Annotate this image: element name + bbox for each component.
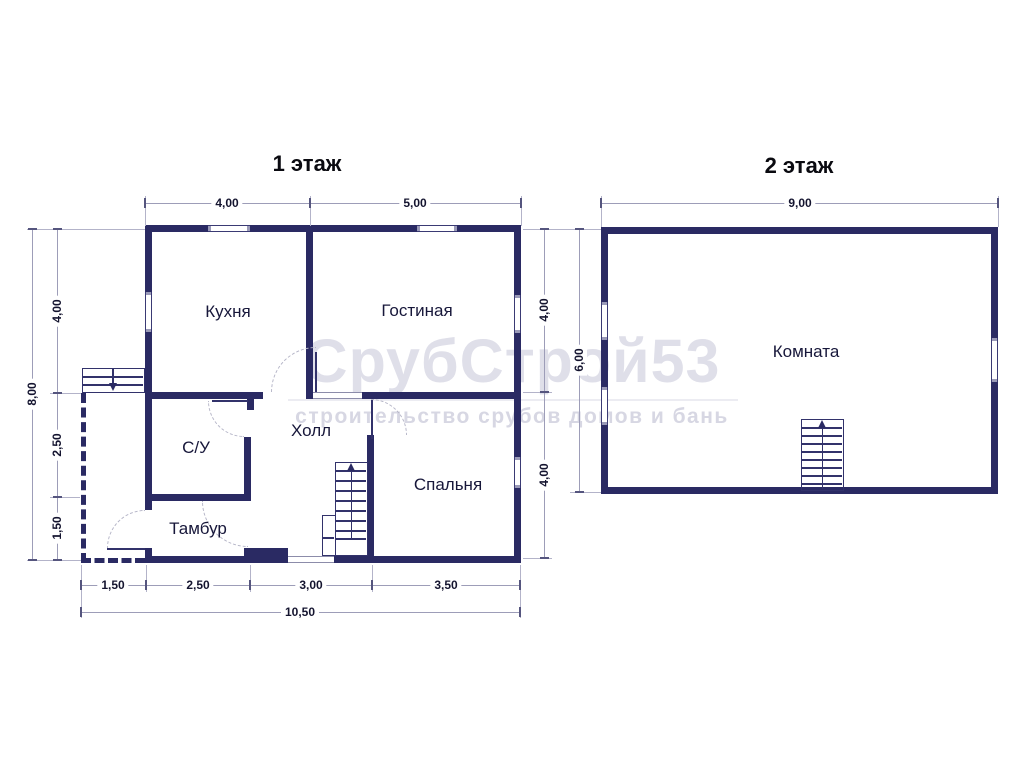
dim-label-left-middle: 2,50	[49, 429, 65, 460]
f1-wall-hall-left	[145, 392, 263, 399]
dim-tick	[144, 198, 146, 208]
f1-door-gap-vestibule-porch	[145, 510, 152, 548]
dim-tick	[540, 557, 549, 559]
f2-window-right	[991, 338, 998, 382]
f1-window-kitchen-left	[145, 292, 152, 332]
dim-tick	[519, 580, 521, 590]
dim-label-left-total: 8,00	[24, 378, 40, 409]
f1-wall-bathroom-bottom	[145, 494, 251, 501]
f1-dim-line-left	[57, 229, 58, 560]
floor1-title: 1 этаж	[273, 151, 342, 177]
dim-tick	[575, 228, 584, 230]
f1-window-living-right	[514, 295, 521, 333]
dim-tick	[53, 559, 62, 561]
f1-window-kitchen-top	[208, 225, 250, 232]
dim-label-left-upper: 4,00	[49, 295, 65, 326]
f1-entrance-opening	[288, 556, 334, 563]
dim-tick	[145, 580, 147, 590]
stairs-arrow-up-icon	[818, 420, 826, 428]
f2-wall-bottom	[601, 487, 998, 494]
dim-tick	[28, 228, 37, 230]
dim-tick	[371, 580, 373, 590]
f1-door-arc-bathroom	[208, 401, 244, 437]
f1-dim-line-right	[544, 229, 545, 558]
stair-center-line	[351, 471, 353, 539]
dim-tick	[53, 392, 62, 394]
dim-tick	[309, 198, 311, 208]
floorplan-canvas: СрубСтрой53 строительство срубов домов и…	[0, 0, 1024, 768]
f2-wall-top	[601, 227, 998, 234]
dim-tick	[540, 391, 549, 393]
dim-label-bottom-hall: 3,00	[295, 577, 326, 593]
dim-tick	[600, 198, 602, 208]
stair-center-line	[822, 427, 824, 489]
f1-entry-steps	[82, 368, 145, 393]
dim-tick	[80, 580, 82, 590]
dim-tick	[249, 580, 251, 590]
f1-wall-bedroom-left	[367, 435, 374, 563]
room-label-room: Комната	[773, 342, 840, 362]
dim-tick	[520, 198, 522, 208]
room-label-bathroom: С/У	[182, 438, 210, 458]
f1-porch-outline	[81, 393, 145, 563]
watermark-brand: СрубСтрой53	[272, 326, 752, 396]
dim-tick	[53, 228, 62, 230]
dim-label-bottom-total: 10,50	[281, 604, 319, 620]
dim-tick	[80, 607, 82, 617]
dim-label-right-lower: 4,00	[536, 459, 552, 490]
dim-label-left-lower: 1,50	[49, 512, 65, 543]
dim-tick	[575, 491, 584, 493]
f1-window-living-top	[417, 225, 457, 232]
f1-wall-bathroom-stub	[247, 399, 254, 410]
stairs-arrow-up-icon	[347, 463, 355, 471]
room-label-bedroom: Спальня	[414, 475, 482, 495]
room-label-living: Гостиная	[381, 301, 452, 321]
f2-staircase	[801, 419, 844, 491]
dim-label-bottom-bedroom: 3,50	[430, 577, 461, 593]
steps-arrow-down-icon	[109, 383, 117, 391]
dim-label-top-kitchen: 4,00	[211, 195, 242, 211]
ext-line	[523, 229, 608, 230]
f1-opening-living	[313, 392, 362, 399]
dim-label-f2-top: 9,00	[784, 195, 815, 211]
f1-wall-hall-right	[362, 392, 521, 399]
f1-wall-top	[145, 225, 521, 232]
f1-staircase-lower-flight	[322, 515, 336, 556]
f1-wall-vestibule-stub	[244, 548, 288, 556]
f2-window-left-upper	[601, 302, 608, 340]
dim-label-bottom-vestibule: 2,50	[182, 577, 213, 593]
watermark-rule	[288, 399, 738, 401]
floor2-title: 2 этаж	[765, 153, 834, 179]
dim-tick	[540, 228, 549, 230]
room-label-vestibule: Тамбур	[169, 519, 227, 539]
dim-label-bottom-porch: 1,50	[97, 577, 128, 593]
dim-label-right-upper: 4,00	[536, 294, 552, 325]
room-label-hall: Холл	[291, 421, 331, 441]
dim-tick	[997, 198, 999, 208]
f2-window-left-lower	[601, 387, 608, 425]
dim-label-top-living: 5,00	[399, 195, 430, 211]
f1-staircase	[335, 462, 368, 556]
dim-label-f2-left: 6,00	[571, 344, 587, 375]
ext-line	[27, 229, 145, 230]
dim-tick	[28, 559, 37, 561]
f1-wall-bathroom-right	[244, 437, 251, 501]
stair-tread	[323, 537, 334, 539]
dim-tick	[53, 496, 62, 498]
f2-wall-left	[601, 227, 608, 494]
f1-window-bedroom-right	[514, 457, 521, 488]
dim-tick	[519, 607, 521, 617]
f1-door-gap-kitchen	[263, 392, 306, 399]
room-label-kitchen: Кухня	[205, 302, 251, 322]
f1-dim-line-top	[145, 203, 521, 204]
watermark-tagline: строительство срубов домов и бань	[272, 405, 752, 429]
